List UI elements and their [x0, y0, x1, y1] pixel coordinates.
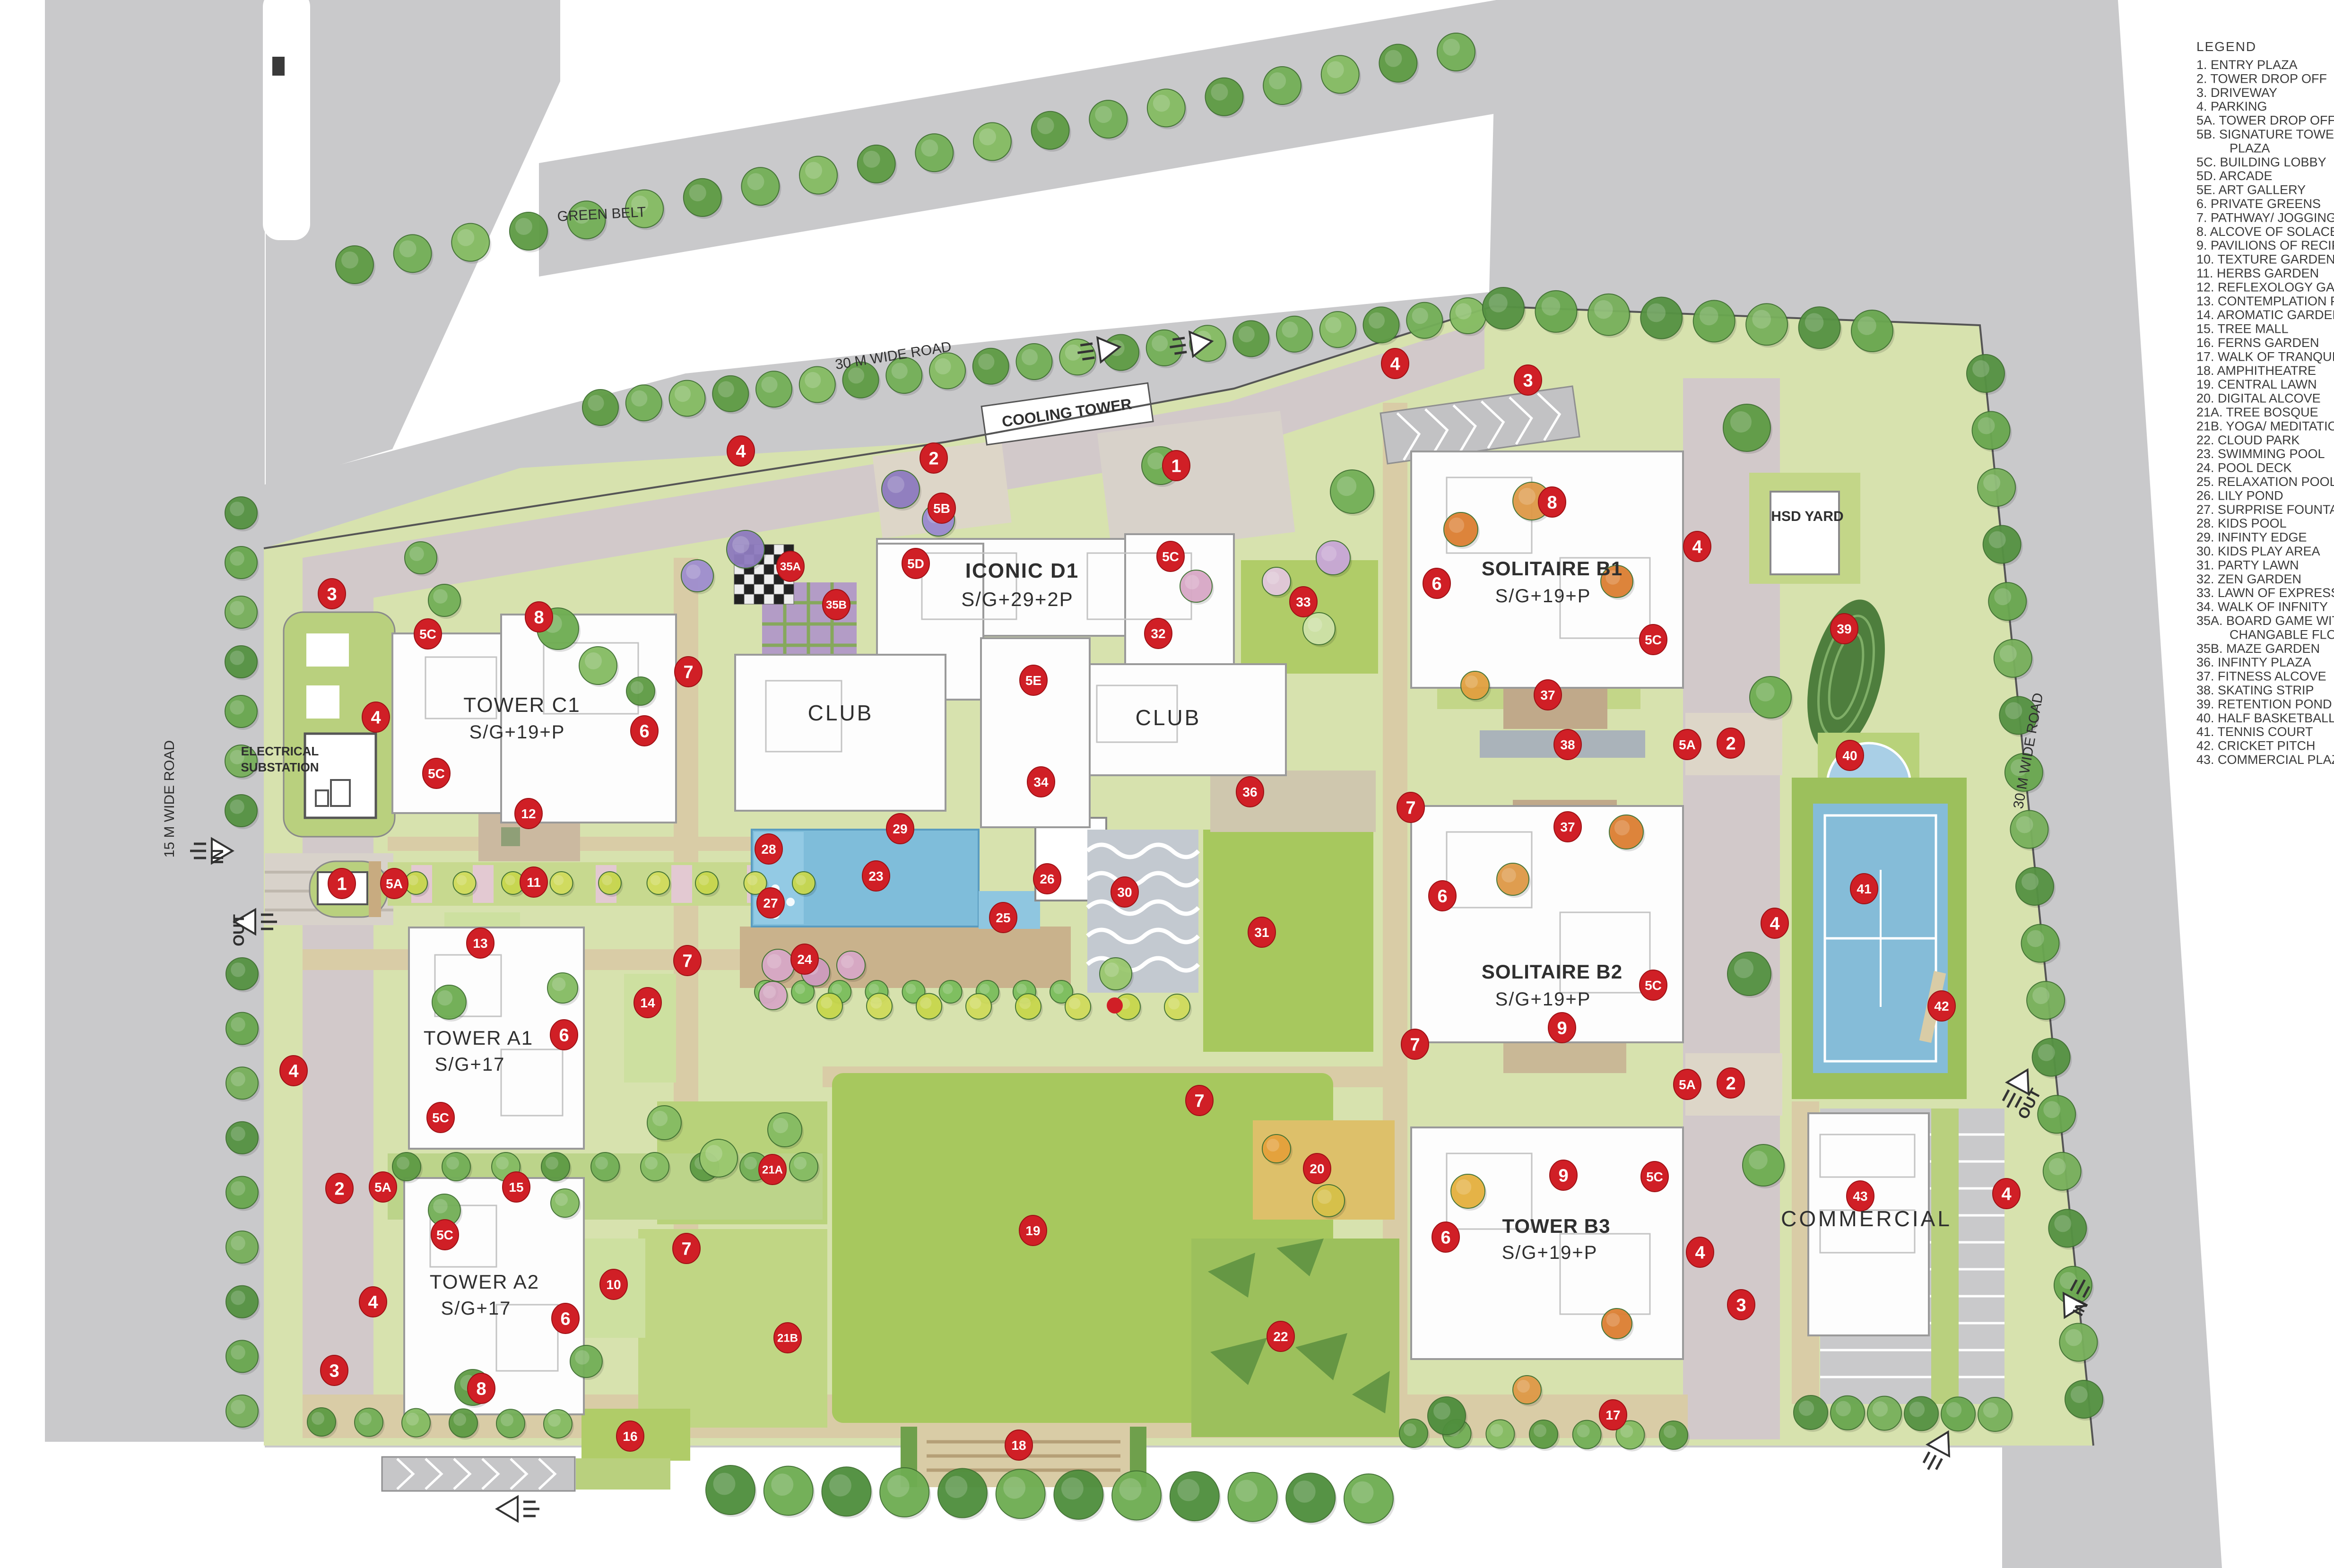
map-label: S/G+29+2P	[961, 588, 1074, 610]
map-marker: 30	[1111, 877, 1138, 907]
legend-item: 31. PARTY LAWN	[2196, 558, 2299, 572]
legend-item: 10. TEXTURE GARDEN	[2196, 252, 2334, 267]
map-marker: 25	[989, 902, 1017, 933]
svg-text:10: 10	[606, 1277, 621, 1292]
legend-item: 1. ENTRY PLAZA	[2196, 58, 2298, 72]
map-label: SUBSTATION	[241, 760, 319, 774]
legend-item: 43. COMMERCIAL PLAZA	[2196, 753, 2334, 767]
legend-item: 21B. YOGA/ MEDITATION LAWN	[2196, 419, 2334, 433]
map-label: S/G+17	[441, 1298, 512, 1319]
svg-text:39: 39	[1837, 622, 1851, 636]
map-marker: 1	[328, 868, 356, 899]
map-marker: 4	[1761, 908, 1788, 938]
map-marker: 22	[1267, 1321, 1294, 1351]
map-label: S/G+19+P	[1502, 1242, 1598, 1263]
map-marker: 4	[1381, 348, 1409, 379]
svg-text:5B: 5B	[933, 501, 950, 516]
legend-item: 13. CONTEMPLATION PAVILION	[2196, 294, 2334, 308]
svg-text:42: 42	[1934, 999, 1949, 1014]
svg-text:21A: 21A	[762, 1164, 783, 1177]
svg-text:11: 11	[527, 875, 541, 890]
map-marker: 28	[755, 834, 782, 864]
svg-text:26: 26	[1040, 872, 1054, 886]
map-marker: 4	[1993, 1178, 2020, 1209]
map-label: COMMERCIAL	[1781, 1206, 1952, 1231]
svg-text:5D: 5D	[907, 556, 924, 571]
legend-item: 39. RETENTION POND	[2196, 697, 2332, 711]
map-marker: 3	[1514, 365, 1542, 395]
legend-item: 28. KIDS POOL	[2196, 516, 2287, 530]
map-marker: 7	[674, 945, 701, 976]
svg-text:1: 1	[1171, 457, 1181, 476]
svg-text:6: 6	[1437, 887, 1447, 907]
svg-text:25: 25	[996, 910, 1010, 925]
svg-text:4: 4	[368, 1293, 378, 1313]
map-marker: 19	[1019, 1215, 1047, 1246]
svg-text:8: 8	[534, 608, 544, 628]
map-marker: 17	[1599, 1400, 1627, 1430]
map-label: TOWER A1	[424, 1027, 533, 1049]
svg-text:5C: 5C	[428, 766, 445, 781]
legend-item: 23. SWIMMING POOL	[2196, 447, 2325, 461]
svg-text:40: 40	[1842, 748, 1857, 763]
svg-text:7: 7	[1410, 1035, 1420, 1055]
map-marker: 7	[1186, 1085, 1213, 1116]
svg-text:4: 4	[288, 1062, 298, 1082]
legend-item: 5C. BUILDING LOBBY	[2196, 155, 2326, 169]
map-marker: 7	[675, 657, 702, 687]
map-marker: 40	[1836, 740, 1864, 771]
svg-text:2: 2	[1726, 734, 1735, 754]
gate-bar	[272, 57, 285, 76]
map-marker: 5A	[1674, 1069, 1701, 1100]
map-marker: 37	[1554, 812, 1581, 842]
map-label: TOWER C1	[463, 693, 580, 717]
map-marker: 13	[467, 928, 494, 958]
legend-item: 42. CRICKET PITCH	[2196, 739, 2316, 753]
map-marker: 27	[757, 888, 784, 918]
legend-item: 8. ALCOVE OF SOLACE	[2196, 225, 2334, 239]
svg-text:23: 23	[868, 869, 883, 884]
svg-text:29: 29	[893, 822, 907, 836]
svg-text:14: 14	[640, 996, 655, 1010]
map-marker: 5E	[1020, 665, 1047, 695]
svg-text:2: 2	[928, 449, 938, 469]
map-marker: 3	[1727, 1290, 1755, 1320]
svg-text:7: 7	[1194, 1092, 1204, 1111]
map-marker: 7	[1397, 792, 1424, 823]
svg-text:18: 18	[1011, 1438, 1026, 1453]
svg-text:5E: 5E	[1025, 673, 1041, 688]
svg-text:5C: 5C	[419, 627, 436, 641]
svg-text:35A: 35A	[780, 561, 801, 573]
svg-text:5A: 5A	[1679, 737, 1696, 752]
svg-text:20: 20	[1310, 1161, 1324, 1176]
site-plan-map: 425B14335C87465C1215A115D5C35A35B33325E8…	[0, 0, 2334, 1568]
map-marker: 5C	[1640, 624, 1667, 655]
svg-text:5C: 5C	[1162, 549, 1179, 564]
svg-text:7: 7	[683, 663, 693, 683]
legend-item: 5B. SIGNATURE TOWER DROP OFF	[2196, 127, 2334, 141]
map-marker: 4	[359, 1287, 387, 1317]
svg-text:5A: 5A	[374, 1180, 391, 1195]
svg-text:5A: 5A	[386, 876, 403, 891]
map-marker: 2	[1717, 728, 1744, 758]
legend-item: 2. TOWER DROP OFF	[2196, 71, 2327, 86]
svg-text:4: 4	[1770, 914, 1779, 934]
svg-text:27: 27	[763, 896, 778, 910]
svg-text:5C: 5C	[436, 1228, 453, 1242]
svg-text:34: 34	[1033, 775, 1049, 789]
svg-text:33: 33	[1296, 595, 1310, 609]
map-marker: 5B	[928, 493, 955, 523]
map-marker: 5A	[369, 1172, 397, 1202]
legend-item: 29. INFINTY EDGE	[2196, 530, 2307, 545]
legend-item: 33. LAWN OF EXPRESSION	[2196, 586, 2334, 600]
svg-text:6: 6	[639, 722, 649, 742]
map-label: SOLITAIRE B1	[1482, 557, 1623, 580]
legend-item: 20. DIGITAL ALCOVE	[2196, 391, 2321, 406]
svg-text:32: 32	[1151, 626, 1165, 641]
svg-text:4: 4	[1695, 1243, 1705, 1263]
map-marker: 42	[1928, 991, 1955, 1021]
svg-text:9: 9	[1558, 1166, 1568, 1186]
map-label: IN	[209, 849, 226, 864]
map-marker: 15	[503, 1172, 530, 1202]
map-marker: 23	[862, 861, 890, 891]
svg-text:21B: 21B	[777, 1332, 798, 1345]
map-marker: 6	[1429, 881, 1456, 911]
legend-item: 32. ZEN GARDEN	[2196, 572, 2301, 586]
legend-item: PLAZA	[2230, 141, 2270, 155]
legend-item: 34. WALK OF INFNITY	[2196, 600, 2328, 614]
legend-item: 12. REFLEXOLOGY GARDEN	[2196, 280, 2334, 294]
svg-text:7: 7	[681, 1239, 691, 1259]
svg-text:35B: 35B	[826, 599, 847, 612]
map-label: S/G+19+P	[469, 722, 565, 743]
map-marker: 2	[326, 1173, 353, 1204]
svg-text:16: 16	[623, 1429, 637, 1444]
legend-item: 41. TENNIS COURT	[2196, 725, 2313, 739]
map-label: OUT	[230, 914, 247, 946]
map-marker: 5A	[1674, 729, 1701, 760]
map-label: S/G+19+P	[1495, 586, 1591, 606]
map-marker: 6	[550, 1020, 578, 1050]
legend-item: 22. CLOUD PARK	[2196, 433, 2300, 447]
map-label: S/G+19+P	[1495, 989, 1591, 1010]
map-label: TOWER A2	[430, 1271, 539, 1293]
svg-text:15: 15	[509, 1180, 523, 1195]
map-label: S/G+17	[435, 1054, 505, 1075]
map-marker: 4	[280, 1056, 307, 1086]
map-marker: 5C	[414, 619, 442, 649]
svg-text:19: 19	[1025, 1223, 1040, 1238]
map-marker: 5C	[1641, 1161, 1668, 1192]
map-marker: 6	[1423, 568, 1450, 598]
legend-item: 27. SURPRISE FOUNTAIN	[2196, 502, 2334, 517]
legend-item: 18. AMPHITHEATRE	[2196, 364, 2316, 378]
legend-item: 24. POOL DECK	[2196, 461, 2292, 475]
map-marker: 8	[1538, 487, 1566, 517]
svg-text:5C: 5C	[1645, 632, 1662, 647]
svg-text:2: 2	[334, 1179, 344, 1199]
map-marker: 29	[886, 814, 914, 844]
map-marker: 4	[1683, 531, 1711, 562]
svg-text:43: 43	[1853, 1189, 1867, 1204]
map-marker: 4	[727, 436, 755, 466]
legend: LEGEND 1. ENTRY PLAZA2. TOWER DROP OFF3.…	[2196, 39, 2334, 767]
legend-item: 30. KIDS PLAY AREA	[2196, 544, 2320, 558]
map-marker: 21B	[774, 1323, 801, 1353]
legend-item: 5E. ART GALLERY	[2196, 183, 2306, 197]
map-marker: 1	[1163, 450, 1190, 481]
map-marker: 35A	[777, 551, 804, 581]
map-marker: 41	[1850, 874, 1878, 904]
svg-text:5A: 5A	[1679, 1077, 1696, 1092]
map-label: CLUB	[1136, 705, 1201, 730]
legend-item: 15. TREE MALL	[2196, 322, 2289, 336]
map-marker: 2	[1717, 1068, 1744, 1098]
map-marker: 36	[1236, 777, 1264, 807]
svg-text:17: 17	[1605, 1408, 1620, 1422]
map-marker: 7	[1401, 1029, 1429, 1059]
legend-item: 21A. TREE BOSQUE	[2196, 405, 2318, 419]
map-marker: 35B	[823, 589, 850, 620]
svg-text:5C: 5C	[1645, 978, 1662, 993]
svg-text:30: 30	[1117, 885, 1132, 900]
svg-text:37: 37	[1560, 820, 1575, 834]
map-marker: 18	[1005, 1430, 1033, 1460]
svg-text:36: 36	[1242, 785, 1257, 799]
map-marker: 5A	[381, 868, 408, 899]
map-marker: 4	[1686, 1237, 1714, 1267]
legend-item: 26. LILY POND	[2196, 488, 2283, 502]
map-label: ICONIC D1	[965, 559, 1079, 582]
legend-item: 9. PAVILIONS OF RECIPROCITY	[2196, 238, 2334, 252]
direction-arrow-icon	[497, 1497, 539, 1521]
legend-item: 25. RELAXATION POOL	[2196, 475, 2334, 489]
map-marker: 38	[1554, 729, 1581, 760]
map-marker: 9	[1548, 1013, 1576, 1043]
site-plan-stage: 425B14335C87465C1215A115D5C35A35B33325E8…	[0, 0, 2334, 1568]
map-label: ELECTRICAL	[241, 744, 319, 758]
legend-item: 11. HERBS GARDEN	[2196, 266, 2319, 280]
svg-text:41: 41	[1857, 882, 1871, 896]
legend-item: 36. INFINTY PLAZA	[2196, 655, 2311, 669]
svg-text:3: 3	[327, 585, 337, 605]
map-marker: 9	[1550, 1160, 1577, 1190]
map-marker: 3	[321, 1355, 348, 1386]
svg-text:9: 9	[1557, 1019, 1567, 1039]
svg-text:28: 28	[761, 842, 776, 857]
legend-item: 35A. BOARD GAME WITH	[2196, 614, 2334, 628]
legend-item: 7. PATHWAY/ JOGGING TRAIL	[2196, 210, 2334, 225]
map-marker: 12	[515, 798, 542, 829]
map-marker: 5C	[1640, 970, 1667, 1000]
map-label: 15 M WIDE ROAD	[162, 740, 177, 858]
map-marker: 33	[1290, 587, 1317, 617]
map-marker: 5D	[902, 548, 929, 579]
map-marker: 39	[1831, 614, 1858, 644]
map-marker: 21A	[759, 1154, 786, 1185]
map-marker: 6	[552, 1303, 579, 1334]
svg-text:4: 4	[736, 442, 746, 462]
map-marker: 26	[1033, 864, 1061, 894]
map-marker: 11	[520, 867, 547, 897]
svg-text:37: 37	[1540, 688, 1555, 702]
legend-item: 5D. ARCADE	[2196, 169, 2273, 183]
map-marker: 8	[468, 1373, 495, 1403]
legend-item: 17. WALK OF TRANQUILITY	[2196, 349, 2334, 364]
svg-text:6: 6	[559, 1026, 569, 1046]
svg-text:8: 8	[1547, 493, 1557, 513]
map-marker: 32	[1145, 618, 1172, 649]
legend-item: 37. FITNESS ALCOVE	[2196, 669, 2326, 684]
map-marker: 6	[631, 716, 658, 746]
legend-title: LEGEND	[2196, 39, 2256, 54]
svg-text:4: 4	[1390, 355, 1400, 374]
svg-text:5C: 5C	[1646, 1170, 1663, 1184]
svg-text:38: 38	[1560, 737, 1575, 752]
svg-text:2: 2	[1726, 1074, 1735, 1094]
svg-text:24: 24	[797, 952, 812, 967]
legend-item: 35B. MAZE GARDEN	[2196, 641, 2320, 656]
map-marker	[1107, 997, 1123, 1014]
svg-text:6: 6	[1440, 1228, 1450, 1248]
map-marker: 3	[318, 579, 346, 609]
map-marker: 10	[600, 1269, 627, 1299]
map-marker: 14	[634, 988, 661, 1018]
map-marker: 4	[362, 702, 390, 732]
legend-item: CHANGABLE FLOORING	[2230, 627, 2334, 641]
svg-text:7: 7	[682, 952, 692, 971]
map-marker: 31	[1248, 917, 1275, 947]
svg-text:13: 13	[473, 936, 487, 951]
svg-text:3: 3	[1523, 371, 1533, 391]
svg-text:6: 6	[560, 1309, 570, 1329]
svg-text:22: 22	[1273, 1329, 1288, 1344]
map-marker: 34	[1027, 767, 1055, 797]
legend-item: 5A. TOWER DROP OFF PLAZA	[2196, 113, 2334, 128]
legend-item: 16. FERNS GARDEN	[2196, 336, 2319, 350]
map-label: TOWER B3	[1502, 1215, 1611, 1237]
svg-text:6: 6	[1432, 574, 1441, 594]
legend-item: 4. PARKING	[2196, 99, 2267, 113]
map-label: HSD YARD	[1771, 509, 1843, 524]
legend-item: 3. DRIVEWAY	[2196, 86, 2277, 100]
svg-text:7: 7	[1406, 798, 1415, 818]
map-marker: 24	[791, 944, 818, 974]
legend-item: 19. CENTRAL LAWN	[2196, 377, 2317, 391]
legend-item: 40. HALF BASKETBALL COURT	[2196, 711, 2334, 725]
svg-text:31: 31	[1254, 925, 1269, 940]
legend-item: 6. PRIVATE GREENS	[2196, 197, 2321, 211]
svg-text:3: 3	[1736, 1296, 1746, 1316]
svg-text:8: 8	[476, 1379, 486, 1399]
map-marker: 5C	[427, 1102, 454, 1133]
legend-item: 14. AROMATIC GARDEN	[2196, 308, 2334, 322]
map-marker: 20	[1303, 1153, 1331, 1184]
map-marker: 2	[920, 443, 947, 473]
map-marker: 5C	[431, 1220, 459, 1250]
map-marker: 6	[1432, 1222, 1459, 1252]
svg-text:4: 4	[1692, 537, 1702, 557]
map-marker: 37	[1534, 680, 1562, 710]
map-marker: 5C	[1157, 541, 1184, 572]
svg-text:5C: 5C	[432, 1110, 449, 1125]
map-label: CLUB	[808, 701, 874, 725]
map-label: SOLITAIRE B2	[1482, 961, 1623, 983]
map-marker: 7	[673, 1233, 700, 1264]
svg-text:1: 1	[337, 875, 347, 894]
map-marker: 16	[616, 1421, 644, 1451]
svg-text:3: 3	[329, 1361, 339, 1381]
map-marker: 8	[525, 602, 553, 632]
legend-item: 38. SKATING STRIP	[2196, 683, 2314, 697]
svg-text:4: 4	[371, 708, 381, 728]
svg-text:12: 12	[521, 806, 536, 821]
map-marker: 5C	[423, 758, 450, 788]
svg-text:4: 4	[2001, 1185, 2011, 1204]
